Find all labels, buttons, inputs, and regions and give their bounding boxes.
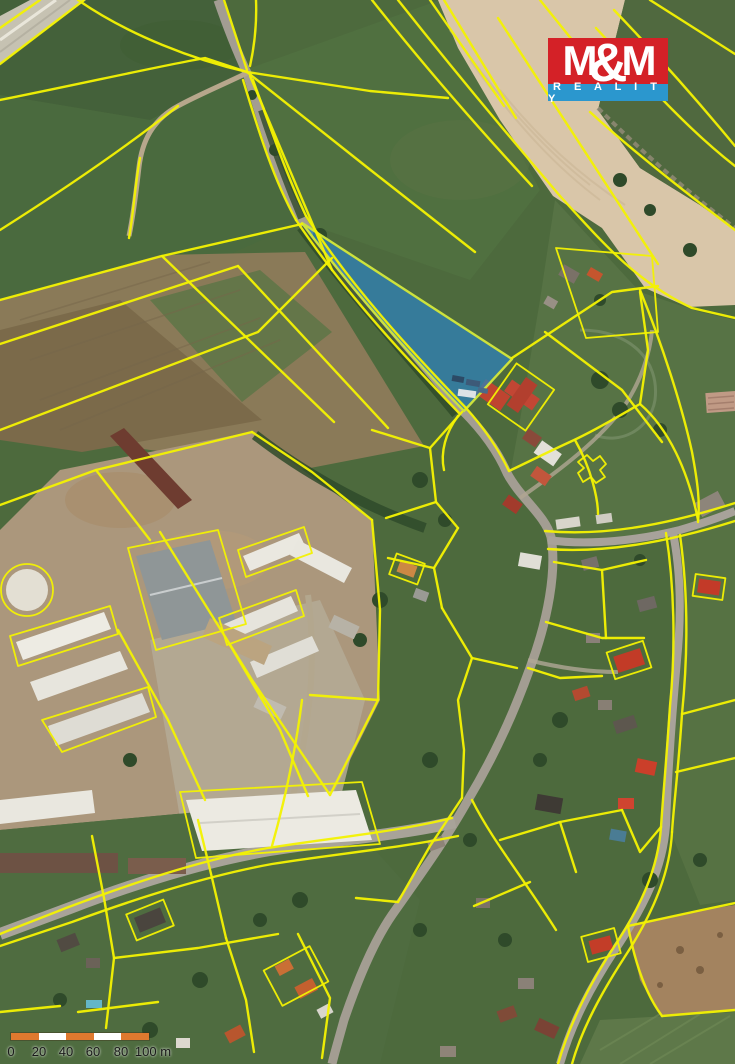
scale-label: 60 xyxy=(86,1044,100,1059)
aerial-cadastral-map: M & M R E A L I T Y 0 20 40 60 80 100 m xyxy=(0,0,735,1064)
logo-red-box: M & M xyxy=(548,38,668,84)
logo-reality-bar: R E A L I T Y xyxy=(548,84,668,101)
scale-label: 80 xyxy=(114,1044,128,1059)
scale-segment xyxy=(66,1033,94,1040)
map-canvas xyxy=(0,0,735,1064)
scale-label: 40 xyxy=(59,1044,73,1059)
scale-segment xyxy=(94,1033,122,1040)
scale-labels: 0 20 40 60 80 100 m xyxy=(0,1044,220,1060)
scale-bar-segments xyxy=(11,1033,149,1040)
scale-segment xyxy=(11,1033,39,1040)
logo-ampersand: & xyxy=(589,41,628,84)
scale-label: 20 xyxy=(32,1044,46,1059)
mm-reality-logo: M & M R E A L I T Y xyxy=(548,38,668,101)
silo-tank xyxy=(6,569,48,611)
scale-label: 100 m xyxy=(135,1044,171,1059)
scale-segment xyxy=(39,1033,67,1040)
map-scale-bar: 0 20 40 60 80 100 m xyxy=(0,1028,220,1064)
scale-label: 0 xyxy=(7,1044,14,1059)
fields-layer xyxy=(0,0,735,1064)
scale-segment xyxy=(121,1033,149,1040)
